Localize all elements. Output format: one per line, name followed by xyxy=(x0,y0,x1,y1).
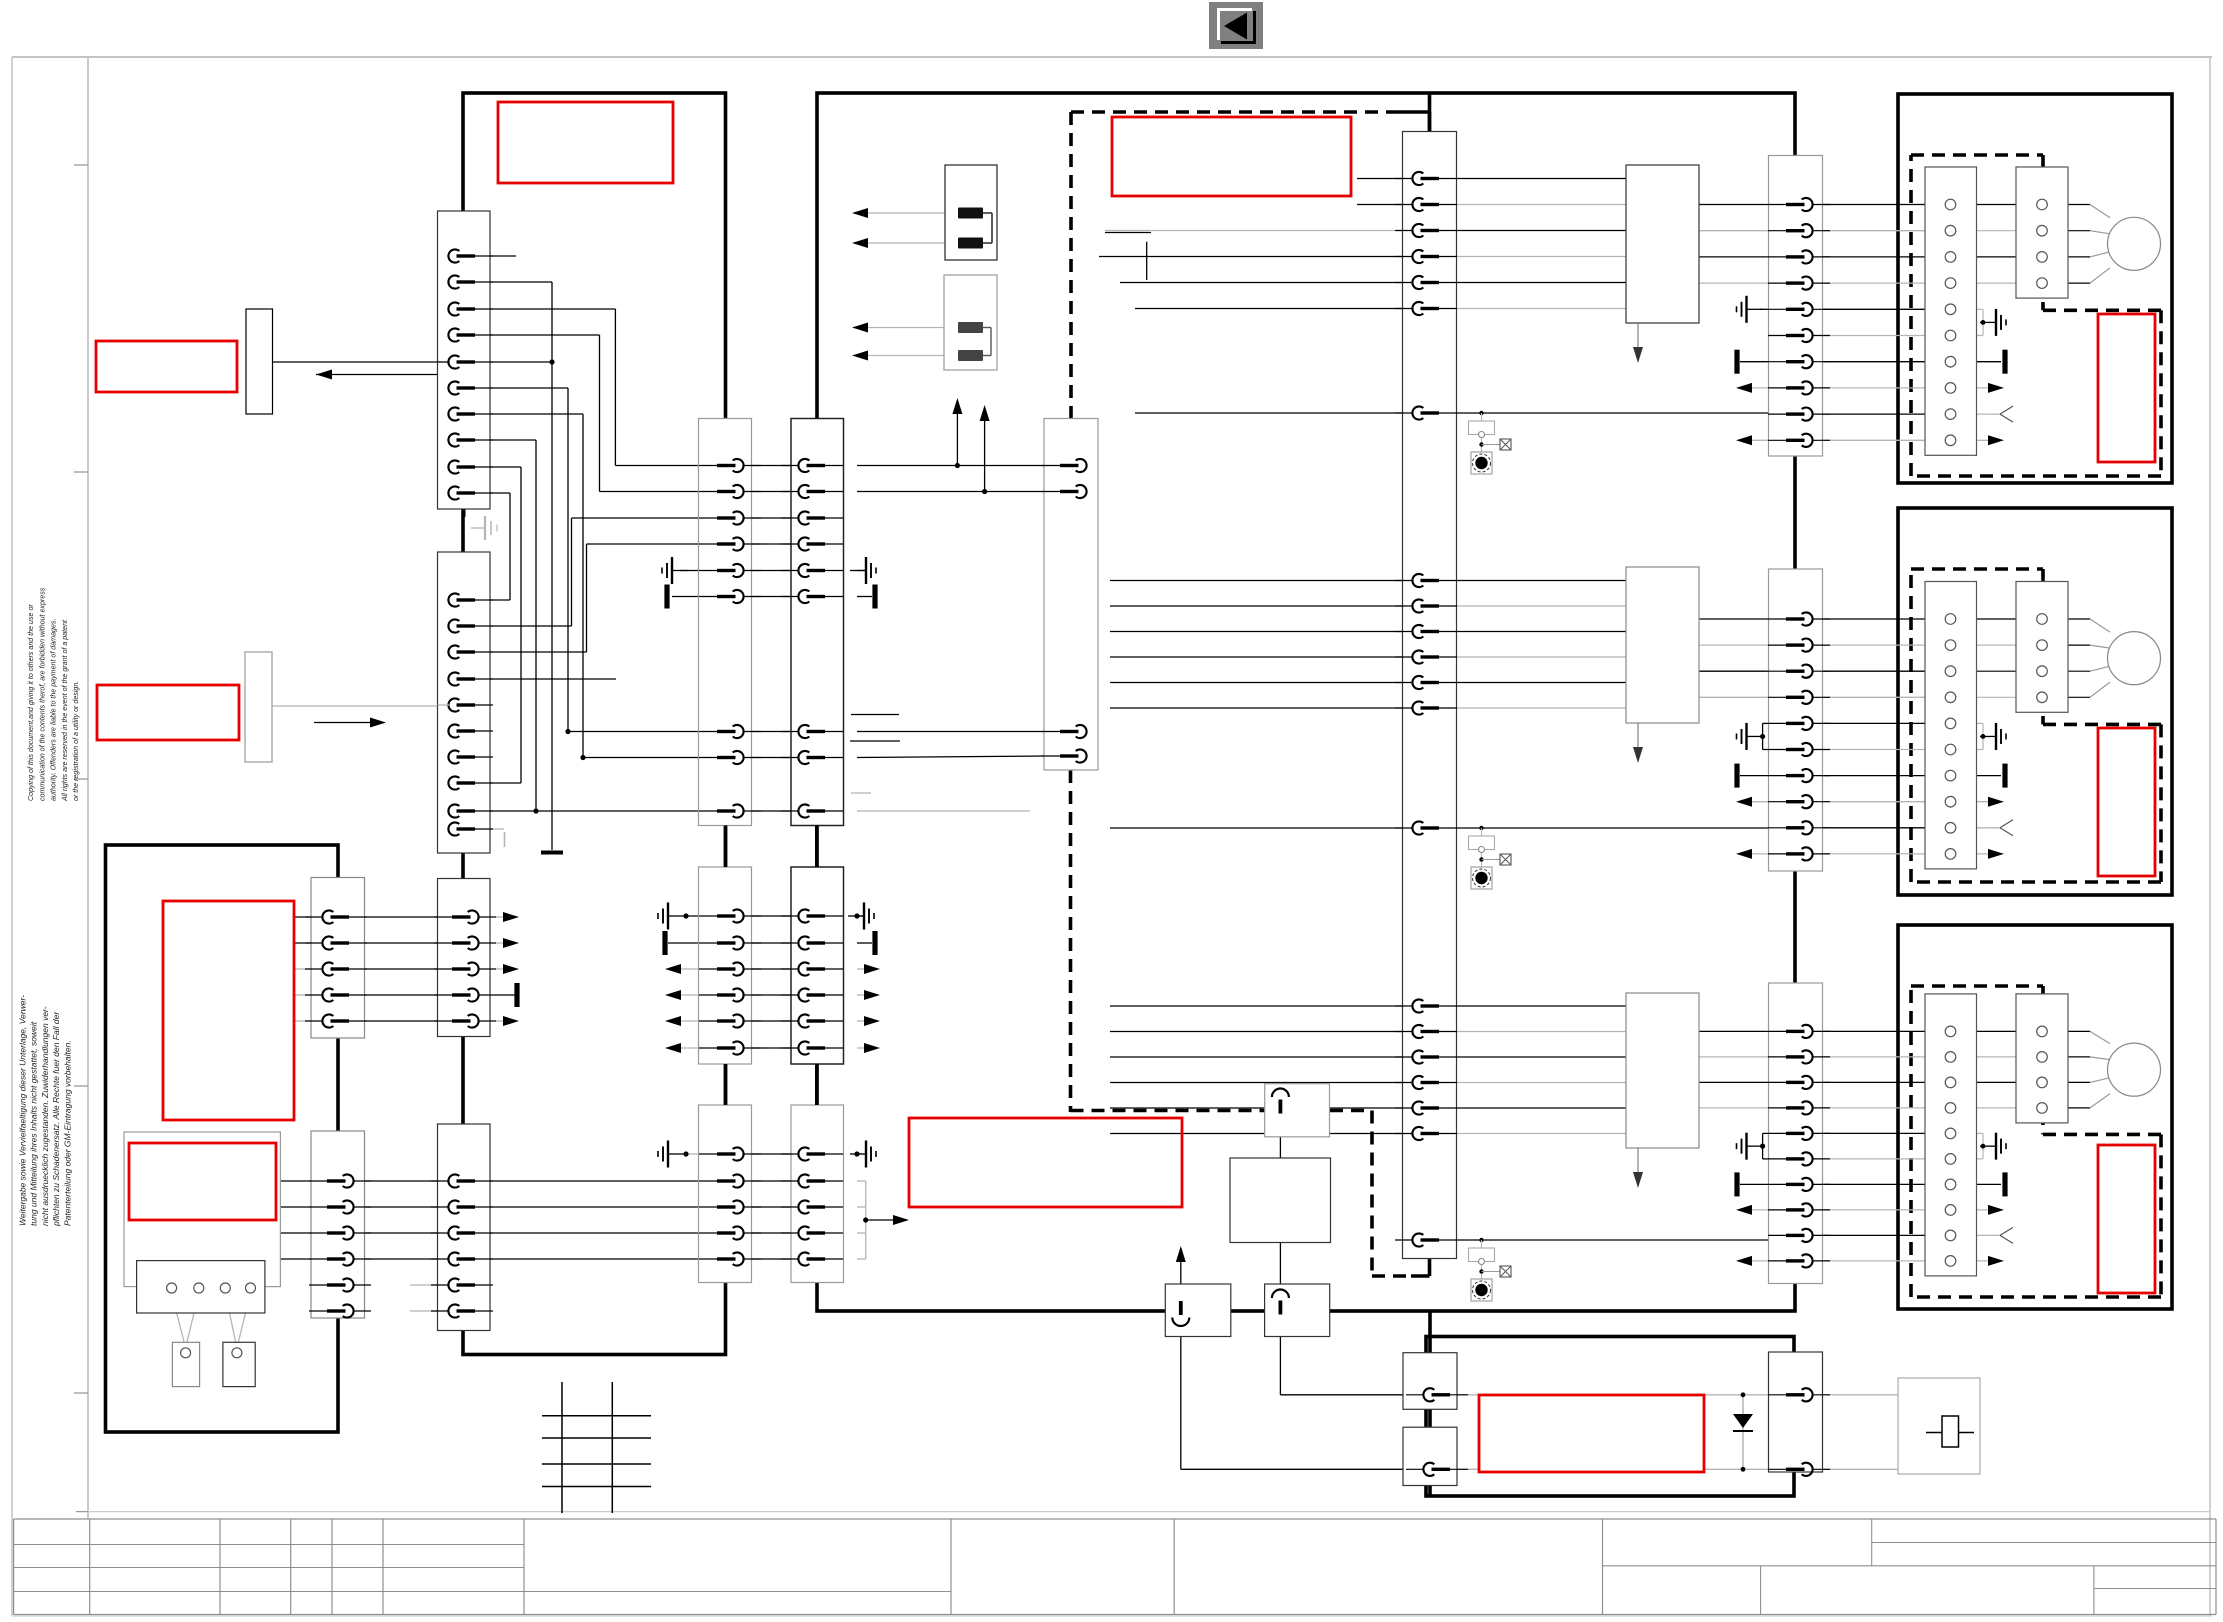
svg-text:authority. Offenders are liabl: authority. Offenders are liable to the p… xyxy=(50,619,58,801)
svg-text:Copying of this document,and g: Copying of this document,and giving it t… xyxy=(27,604,35,801)
svg-text:Patenterteilung oder GM-Eintra: Patenterteilung oder GM-Eintragung vorbe… xyxy=(62,1040,72,1226)
svg-text:communication of the contents: communication of the contents therof, ar… xyxy=(38,587,46,801)
svg-text:Weitergabe sowie Vervielfaelti: Weitergabe sowie Vervielfaeltigung diese… xyxy=(18,995,28,1226)
svg-text:tung und Mitteilung ihres Inha: tung und Mitteilung ihres Inhalts nicht … xyxy=(29,1021,39,1226)
svg-text:pflichten zu Schadenersatz. Al: pflichten zu Schadenersatz. Alle Rechte … xyxy=(51,1011,61,1227)
svg-text:or the registration of a utili: or the registration of a utility or desi… xyxy=(72,681,80,801)
svg-text:All rights are reserved in the: All rights are reserved in the event of … xyxy=(61,619,69,802)
svg-text:nicht ausdruecklich zugestande: nicht ausdruecklich zugestanden. Zuwider… xyxy=(40,1006,50,1226)
